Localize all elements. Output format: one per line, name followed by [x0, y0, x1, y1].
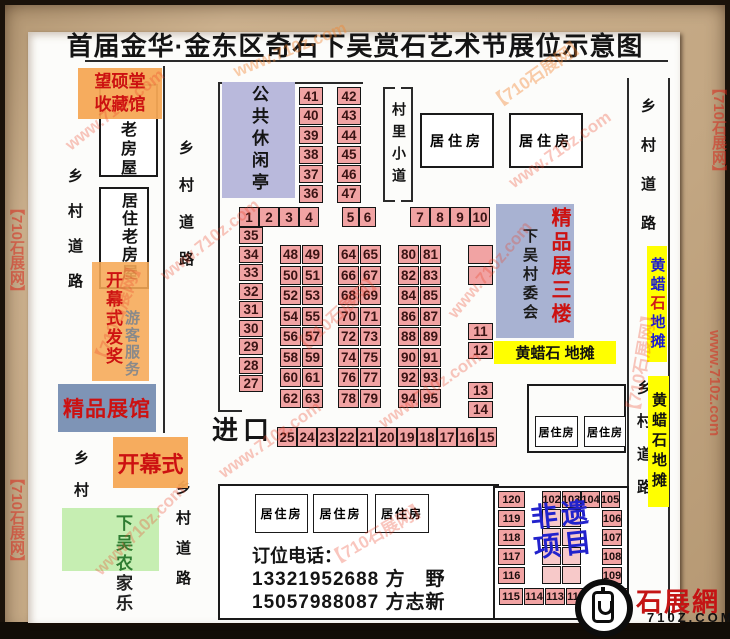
- residence-building-5: 居住房: [255, 494, 308, 533]
- booth-cell: 88: [398, 327, 419, 346]
- booth-cell: 95: [420, 389, 441, 408]
- booth-cell: 36: [299, 185, 323, 203]
- wax-stone-stall-v-bottom-label: 黄蜡石地摊: [648, 392, 669, 492]
- booth-cell: 42: [337, 87, 361, 105]
- booth-cell: 16: [457, 427, 477, 447]
- booth-cell: 77: [360, 368, 381, 387]
- booth-cell: 119: [498, 510, 525, 527]
- village-path-label: 村里小道: [389, 102, 409, 190]
- booth-cell: 63: [302, 389, 323, 408]
- booth-cell: 41: [299, 87, 323, 105]
- booth-cell: 67: [360, 266, 381, 285]
- booth-column-42-47: 424344454647: [337, 87, 361, 203]
- booth-grid-48-63: 48495051525354555657585960616263: [280, 245, 323, 408]
- booth-cell: 43: [337, 107, 361, 125]
- residence-label: 居住房: [319, 505, 361, 522]
- stone-expo-seal-icon: [575, 579, 633, 637]
- residence-label: 居住房: [381, 505, 423, 522]
- residence-label: 居住房: [260, 505, 302, 522]
- booth-cell: 28: [239, 357, 263, 374]
- leisure-pavilion-label: 公共休闲亭: [246, 85, 271, 195]
- booth-column-120-116: 120119118117116: [498, 491, 525, 584]
- residence-label: 居住房: [430, 131, 484, 151]
- booth-cell: 32: [239, 283, 263, 300]
- booth-cell: 62: [280, 389, 301, 408]
- booth-cell: 74: [338, 348, 359, 367]
- booth-cell: 9: [450, 207, 470, 227]
- booth-cell: 82: [398, 266, 419, 285]
- booth-cell: 24: [297, 427, 317, 447]
- booth-cell: 10: [470, 207, 490, 227]
- booth-cell: 12: [468, 342, 493, 359]
- booth-cell: 106: [602, 510, 622, 527]
- visitor-service-label: 游客服务: [121, 310, 142, 378]
- farmhouse-label-green: 下吴农: [113, 514, 132, 574]
- booth-cell: 87: [420, 307, 441, 326]
- booth-cell: 81: [420, 245, 441, 264]
- wangshuo-collection-hall: 望硕堂 收藏馆: [78, 68, 162, 119]
- road-label-left-inner-bottom: 乡村道路: [172, 480, 193, 600]
- booth-cell: 8: [430, 207, 450, 227]
- entrance-label: 进口: [212, 410, 274, 447]
- booth-cell: 27: [239, 375, 263, 392]
- booth-cell: [468, 245, 493, 264]
- booth-cell: 115: [499, 588, 523, 605]
- booth-cell: 18: [417, 427, 437, 447]
- booth-cell: 7: [410, 207, 430, 227]
- booth-cell: 23: [317, 427, 337, 447]
- booth-cell: 52: [280, 286, 301, 305]
- residence-building-2: 居住房: [509, 113, 583, 168]
- booth-cell: 107: [602, 529, 622, 546]
- booth-cell: 108: [602, 548, 622, 565]
- booth-cell: [468, 266, 493, 285]
- booth-cell: 2: [259, 207, 279, 227]
- booth-cell: 79: [360, 389, 381, 408]
- booth-cell: 66: [338, 266, 359, 285]
- residence-building-6: 居住房: [313, 494, 368, 533]
- residence-label: 居住房: [519, 131, 573, 151]
- booth-cell: 55: [302, 307, 323, 326]
- booth-cell: 4: [299, 207, 319, 227]
- booth-cell: 65: [360, 245, 381, 264]
- booth-cell: 90: [398, 348, 419, 367]
- booth-cell: 93: [420, 368, 441, 387]
- booth-cell: 68: [338, 286, 359, 305]
- booth-cell: 34: [239, 246, 263, 263]
- booth-grid-64-79: 64656667686970717273747576777879: [338, 245, 381, 408]
- village-path-cap-bl: [383, 200, 395, 202]
- heritage-project-label: 非遗 项目: [524, 497, 602, 564]
- booth-row-1-4: 1234: [239, 207, 319, 227]
- booth-cell: 51: [302, 266, 323, 285]
- road-label-right-top: 乡村道路: [637, 98, 658, 254]
- booth-cell: 60: [280, 368, 301, 387]
- booth-cell: 78: [338, 389, 359, 408]
- village-path-cap-tl: [383, 87, 395, 89]
- booth-cell: 44: [337, 126, 361, 144]
- road-label-left-outer-top: 乡村道路: [64, 168, 85, 308]
- booth-cell: 114: [524, 588, 544, 605]
- booth-cell: 11: [468, 323, 493, 340]
- booth-cell: 116: [498, 567, 525, 584]
- festival-booth-map: 首届金华·金东区奇石下吴赏石艺术节展位示意图 乡村道路 乡村道路 乡村道路 乡村…: [0, 0, 730, 639]
- booth-cell: 85: [420, 286, 441, 305]
- booth-row-25-15: 2524232221201918171615: [277, 427, 497, 447]
- booth-cell: 6: [359, 207, 376, 227]
- booth-grid-80-95: 80818283848586878889909192939495: [398, 245, 441, 408]
- wax-stone-stall-v-top-label: 黄蜡石地摊: [647, 257, 668, 352]
- boutique-hall-label: 精品展馆: [63, 393, 151, 423]
- booth-cell: 69: [360, 286, 381, 305]
- farmhouse-label-black: 家乐: [113, 574, 132, 614]
- booth-row-7-10: 78910: [410, 207, 490, 227]
- booth-cell: 64: [338, 245, 359, 264]
- booth-cell: 20: [377, 427, 397, 447]
- booth-cell: 89: [420, 327, 441, 346]
- wax-v3: 地摊: [649, 314, 666, 352]
- contact-phone-2: 15057988087 方志新: [252, 587, 446, 614]
- booth-cell: 22: [337, 427, 357, 447]
- booth-cell: 71: [360, 307, 381, 326]
- booth-cell: 83: [420, 266, 441, 285]
- residence-building-1: 居住房: [420, 113, 494, 168]
- residence-label: 居住房: [539, 424, 575, 440]
- booth-cell: 94: [398, 389, 419, 408]
- booth-cell: 40: [299, 107, 323, 125]
- booth-cell: [542, 566, 561, 584]
- wax-stone-stall-vertical-bottom: 黄蜡石地摊: [648, 376, 669, 507]
- residence-label: 居住房: [587, 424, 623, 440]
- frame-edge-left: [0, 0, 5, 639]
- booth-cell: 19: [397, 427, 417, 447]
- booth-column-11-12: 1112: [468, 323, 493, 359]
- booth-cell: 57: [302, 327, 323, 346]
- wax-stone-stall-vertical-top: 黄蜡石地摊: [647, 246, 667, 362]
- village-path-cap-br: [401, 200, 413, 202]
- booth-cell: 72: [338, 327, 359, 346]
- booth-cell: 31: [239, 301, 263, 318]
- booth-cell: 5: [342, 207, 359, 227]
- residence-building-3: 居住房: [535, 416, 578, 447]
- booth-cell: 58: [280, 348, 301, 367]
- booth-cell: 3: [279, 207, 299, 227]
- road-line-center-left: [218, 82, 220, 412]
- booth-cell: 17: [437, 427, 457, 447]
- leisure-pavilion-area: 公共休闲亭: [222, 82, 295, 198]
- site-logo-url: 710Z.COM: [647, 610, 730, 625]
- opening-ceremony-label: 开幕式: [117, 447, 183, 479]
- booth-cell: 46: [337, 165, 361, 183]
- boutique-hall-area: 精品展馆: [58, 384, 156, 432]
- wangshuo-line1: 望硕堂: [95, 71, 146, 93]
- booth-cell: 70: [338, 307, 359, 326]
- village-path-line-left: [383, 87, 385, 202]
- road-line-left-inner: [163, 66, 165, 433]
- booth-cell: 113: [545, 588, 565, 605]
- old-house-label: 老房屋: [114, 121, 138, 178]
- booth-cell: 30: [239, 320, 263, 337]
- wax-v2: 石: [649, 295, 666, 314]
- booth-cell: 56: [280, 327, 301, 346]
- booth-cell: 75: [360, 348, 381, 367]
- booth-cell: 15: [477, 427, 497, 447]
- booth-column-35-27: 353433323130292827: [239, 227, 263, 392]
- booth-cell: 80: [398, 245, 419, 264]
- booth-cell: 39: [299, 126, 323, 144]
- opening-ceremony-area: 开幕式: [113, 437, 188, 488]
- frame-edge-top: [0, 0, 730, 5]
- booth-cell: 13: [468, 382, 493, 399]
- farmhouse-label: 下吴农家乐: [110, 514, 135, 614]
- road-line-right-outer: [668, 78, 670, 618]
- booth-cell: 118: [498, 529, 525, 546]
- wangshuo-line2: 收藏馆: [95, 94, 146, 116]
- frame-edge-right: [725, 0, 730, 639]
- booth-cell: 76: [338, 368, 359, 387]
- booth-column-13-14: 1314: [468, 382, 493, 418]
- booth-cell: 61: [302, 368, 323, 387]
- booth-cell: 73: [360, 327, 381, 346]
- booth-cell: 35: [239, 227, 263, 244]
- booth-cell: [562, 566, 581, 584]
- wax-stone-stall-h-label: 黄蜡石 地摊: [515, 342, 594, 363]
- booth-cell: 120: [498, 491, 525, 508]
- booth-cell: 91: [420, 348, 441, 367]
- booth-cell: 49: [302, 245, 323, 264]
- booth-cell: 37: [299, 165, 323, 183]
- booth-column-41-36: 414039383736: [299, 87, 323, 203]
- road-label-left-inner-top: 乡村道路: [175, 140, 196, 288]
- booth-cell: 92: [398, 368, 419, 387]
- booth-cell: 14: [468, 401, 493, 418]
- seal-jar-glyph-icon: [592, 591, 614, 623]
- booth-cell: 84: [398, 286, 419, 305]
- booth-cell: 29: [239, 338, 263, 355]
- wax-stone-stall-horizontal: 黄蜡石 地摊: [494, 341, 616, 364]
- booth-cell: 54: [280, 307, 301, 326]
- village-path-cap-tr: [401, 87, 413, 89]
- booth-cell: 105: [601, 491, 620, 508]
- booth-cell: 38: [299, 146, 323, 164]
- booth-cell: 117: [498, 548, 525, 565]
- booth-cell: 50: [280, 266, 301, 285]
- booth-cell: 45: [337, 146, 361, 164]
- booth-row-5-6: 56: [342, 207, 376, 227]
- booth-cell: 25: [277, 427, 297, 447]
- wax-v1: 黄蜡: [649, 257, 666, 295]
- booth-cell: 21: [357, 427, 377, 447]
- residence-building-7: 居住房: [375, 494, 429, 533]
- booth-cell: 47: [337, 185, 361, 203]
- booth-pair-unnumbered: [468, 245, 493, 285]
- booth-cell: 53: [302, 286, 323, 305]
- booth-cell: 86: [398, 307, 419, 326]
- boutique-floor3-label: 精品展三楼: [545, 207, 574, 327]
- booth-cell: 33: [239, 264, 263, 281]
- village-committee-label: 下吴村委会: [519, 228, 540, 323]
- booth-cell: 48: [280, 245, 301, 264]
- residence-building-4: 居住房: [584, 416, 626, 447]
- booth-cell: 59: [302, 348, 323, 367]
- booth-cell: 1: [239, 207, 259, 227]
- village-path-line-right: [411, 87, 413, 202]
- page-title: 首届金华·金东区奇石下吴赏石艺术节展位示意图: [30, 26, 680, 63]
